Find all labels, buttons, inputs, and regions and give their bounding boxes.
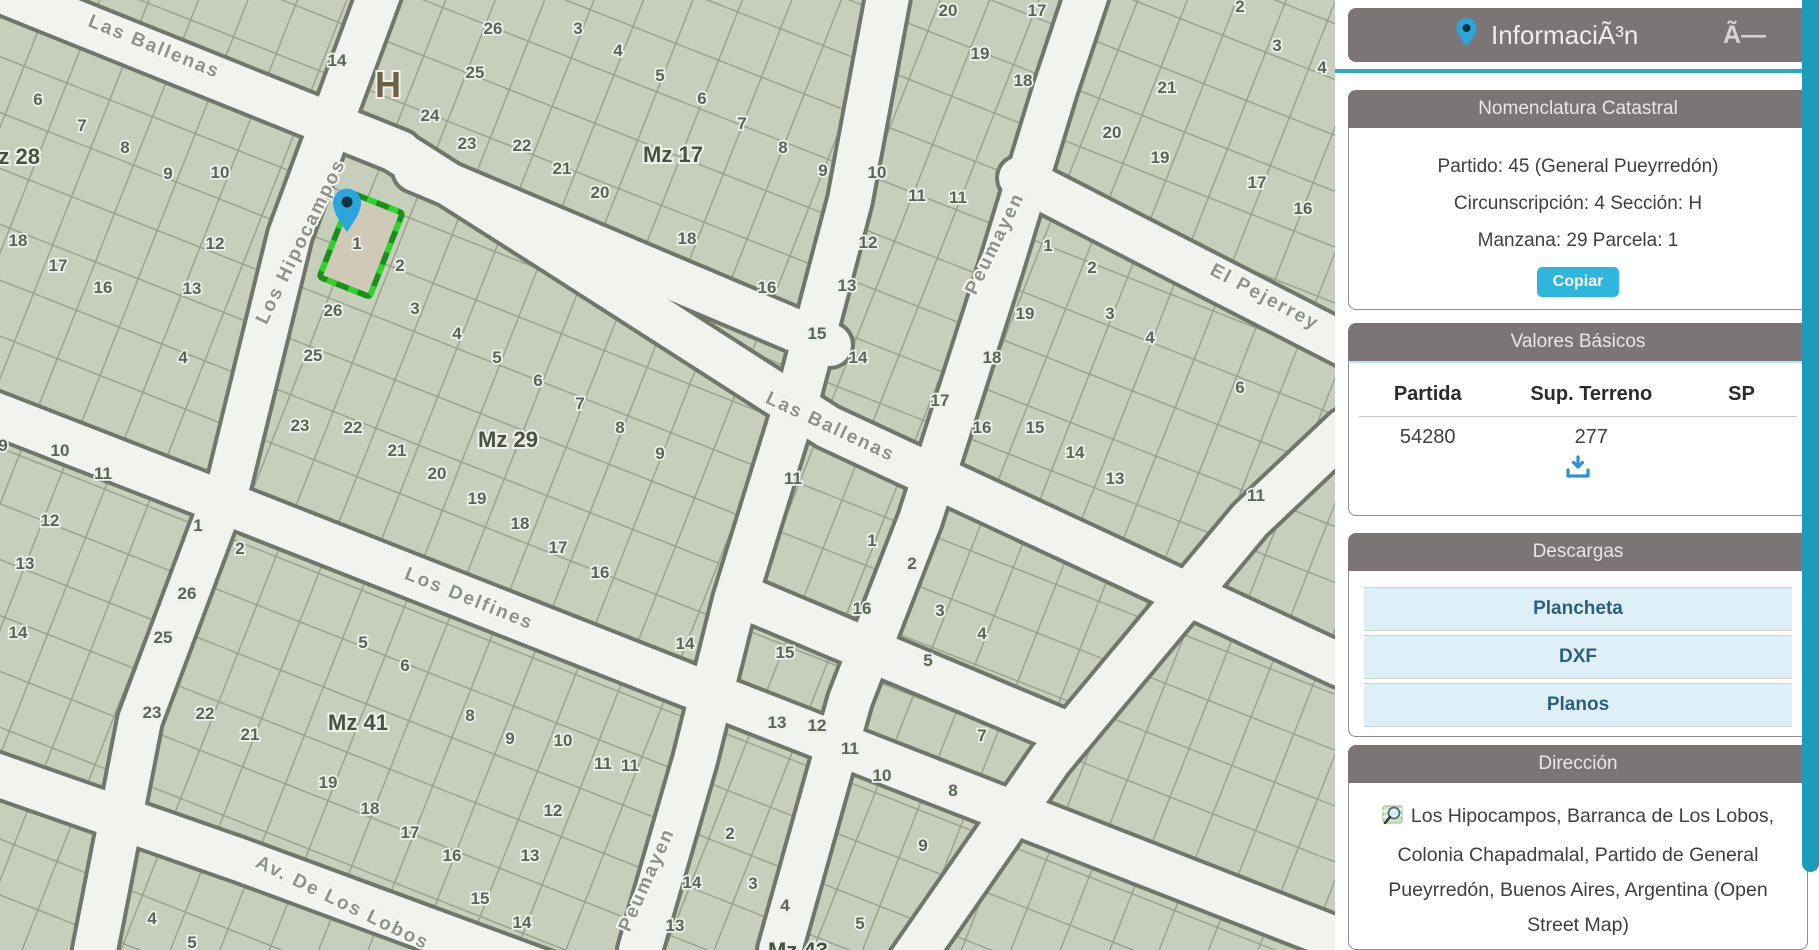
parcel-number-label: 16 — [973, 418, 992, 437]
parcel-number-label: 1 — [1043, 236, 1052, 255]
parcel-number-label: 6 — [400, 656, 409, 675]
parcel-number-label: 19 — [468, 489, 487, 508]
parcel-number-label: 14 — [683, 873, 702, 892]
download-icon[interactable] — [1349, 455, 1807, 485]
parcel-number-label: 20 — [939, 1, 958, 20]
parcel-number-label: 4 — [1317, 58, 1327, 77]
parcel-number-label: 17 — [401, 823, 420, 842]
parcel-number-label: 5 — [923, 651, 932, 670]
parcel-number-label: 18 — [983, 348, 1002, 367]
parcel-number-label: 8 — [465, 706, 474, 725]
parcel-number-label: 13 — [838, 276, 857, 295]
parcel-number-label: 5 — [855, 914, 864, 933]
parcel-number-label: 9 — [655, 444, 664, 463]
parcel-number-label: 13 — [768, 713, 787, 732]
parcel-number-label: 22 — [513, 136, 532, 155]
seccion-letter-label: H — [375, 64, 401, 105]
parcel-number-label: 13 — [183, 279, 202, 298]
parcel-number-label: 10 — [51, 441, 70, 460]
parcel-number-label: 12 — [206, 234, 225, 253]
selected-parcel-number: 1 — [352, 234, 361, 253]
parcel-number-label: 8 — [778, 138, 787, 157]
map-magnifier-icon — [1382, 803, 1405, 838]
parcel-number-label: 4 — [147, 909, 157, 928]
parcel-number-label: 6 — [1235, 378, 1244, 397]
parcel-number-label: 6 — [533, 371, 542, 390]
download-planos[interactable]: Planos — [1364, 683, 1792, 727]
col-sp: SP — [1684, 383, 1799, 406]
section-nomenclatura: Nomenclatura Catastral Partido: 45 (Gene… — [1348, 90, 1808, 310]
parcel-number-label: 4 — [780, 896, 790, 915]
parcel-number-label: 18 — [1014, 71, 1033, 90]
parcel-number-label: 3 — [1272, 36, 1281, 55]
parcel-number-label: 18 — [678, 229, 697, 248]
parcel-number-label: 18 — [511, 514, 530, 533]
parcel-number-label: 22 — [344, 418, 363, 437]
parcel-number-label: 18 — [361, 799, 380, 818]
parcel-number-label: 11 — [94, 464, 112, 483]
parcel-number-label: 17 — [1028, 1, 1047, 20]
panel-header: InformaciÃ³n Ã— — [1348, 8, 1808, 62]
parcel-number-label: 8 — [615, 418, 624, 437]
section-title-valores: Valores Básicos — [1348, 323, 1808, 361]
parcel-number-label: 13 — [1106, 469, 1125, 488]
manzana-parcela-line: Manzana: 29 Parcela: 1 — [1349, 222, 1807, 259]
parcel-number-label: 26 — [484, 19, 503, 38]
parcel-number-label: 5 — [492, 348, 501, 367]
parcel-number-label: 7 — [77, 116, 86, 135]
parcel-number-label: 23 — [291, 416, 310, 435]
parcel-number-label: 16 — [758, 278, 777, 297]
sup-terreno-value: 277 — [1498, 426, 1684, 449]
section-descargas: Descargas Plancheta DXF Planos — [1348, 533, 1808, 737]
sp-value — [1684, 426, 1799, 449]
panel-title: InformaciÃ³n — [1491, 20, 1638, 51]
parcel-number-label: 5 — [358, 633, 367, 652]
parcel-number-label: 25 — [466, 63, 485, 82]
section-title-nomenclatura: Nomenclatura Catastral — [1348, 90, 1808, 128]
download-plancheta[interactable]: Plancheta — [1364, 587, 1792, 631]
parcel-number-label: 21 — [241, 725, 260, 744]
parcel-number-label: 22 — [196, 704, 215, 723]
parcel-number-label: 15 — [776, 643, 795, 662]
download-dxf[interactable]: DXF — [1364, 635, 1792, 679]
parcel-number-label: 11 — [949, 188, 967, 207]
parcel-number-label: 2 — [907, 554, 916, 573]
copiar-button[interactable]: Copiar — [1537, 267, 1620, 297]
parcel-number-label: 11 — [784, 469, 802, 488]
parcel-number-label: 11 — [621, 756, 639, 775]
parcel-number-label: 4 — [977, 624, 987, 643]
parcel-number-label: 2 — [235, 539, 244, 558]
parcel-number-label: 24 — [421, 106, 440, 125]
parcel-number-label: 16 — [443, 846, 462, 865]
parcel-number-label: 3 — [748, 874, 757, 893]
parcel-number-label: 19 — [319, 773, 338, 792]
parcel-number-label: 17 — [1248, 173, 1267, 192]
col-partida: Partida — [1357, 383, 1498, 406]
parcel-number-label: 13 — [16, 554, 35, 573]
parcel-number-label: 25 — [304, 346, 323, 365]
parcel-number-label: 12 — [859, 233, 878, 252]
parcel-number-label: 25 — [154, 628, 173, 647]
parcel-number-label: 16 — [94, 278, 113, 297]
panel-scrollbar[interactable] — [1802, 0, 1819, 872]
parcel-number-label: 10 — [554, 731, 573, 750]
parcel-number-label: 7 — [977, 726, 986, 745]
parcel-number-label: 13 — [666, 916, 685, 935]
parcel-number-label: 17 — [49, 256, 68, 275]
parcel-number-label: 3 — [573, 19, 582, 38]
table-divider — [1359, 416, 1797, 417]
parcel-number-label: 9 — [505, 729, 514, 748]
parcel-number-label: 14 — [513, 913, 532, 932]
close-icon[interactable]: Ã— — [1723, 23, 1766, 48]
parcel-number-label: 14 — [676, 634, 695, 653]
cadastral-map[interactable]: 1467891012181716134910111213142634567891… — [0, 0, 1335, 950]
parcel-number-label: 8 — [948, 781, 957, 800]
parcel-number-label: 17 — [549, 538, 568, 557]
section-direccion: Dirección Los Hipocampos, Barranca de Lo… — [1348, 745, 1808, 950]
parcel-number-label: 15 — [1026, 418, 1045, 437]
parcel-number-label: 19 — [1151, 148, 1170, 167]
parcel-number-label: 2 — [725, 824, 734, 843]
parcel-number-label: 14 — [849, 348, 868, 367]
parcel-number-label: 2 — [395, 256, 404, 275]
parcel-number-label: 12 — [808, 716, 827, 735]
parcel-number-label: 5 — [187, 933, 196, 950]
parcel-number-label: 21 — [553, 159, 572, 178]
manzana-label: Mz 43 — [768, 938, 828, 950]
parcel-number-label: 9 — [918, 836, 927, 855]
section-valores: Valores Básicos Partida Sup. Terreno SP … — [1348, 323, 1808, 516]
info-panel: InformaciÃ³n Ã— Nomenclatura Catastral P… — [1335, 0, 1819, 950]
manzana-label: Mz 17 — [643, 142, 703, 167]
parcel-number-label: 3 — [410, 299, 419, 318]
parcel-number-label: 20 — [1103, 123, 1122, 142]
parcel-number-label: 1 — [867, 531, 876, 550]
parcel-number-label: 4 — [613, 41, 623, 60]
parcel-number-label: 20 — [428, 464, 447, 483]
parcel-number-label: 19 — [971, 44, 990, 63]
parcel-number-label: 13 — [521, 846, 540, 865]
parcel-number-label: 9 — [818, 161, 827, 180]
parcel-number-label: 12 — [544, 801, 563, 820]
parcel-number-label: 23 — [143, 703, 162, 722]
parcel-number-label: 7 — [737, 114, 746, 133]
parcel-number-label: 5 — [655, 66, 664, 85]
parcel-number-label: 14 — [328, 51, 347, 70]
parcel-number-label: 16 — [853, 599, 872, 618]
partida-value: 54280 — [1357, 426, 1498, 449]
parcel-number-label: 21 — [1158, 78, 1177, 97]
parcel-number-label: 15 — [471, 889, 490, 908]
parcel-number-label: 11 — [841, 739, 859, 758]
parcel-number-label: 14 — [9, 623, 28, 642]
manzana-label: Mz 29 — [478, 427, 538, 452]
parcel-number-label: 26 — [324, 301, 343, 320]
parcel-number-label: 3 — [1105, 304, 1114, 323]
parcel-number-label: 1 — [193, 516, 202, 535]
parcel-number-label: 17 — [931, 391, 950, 410]
circunscripcion-line: Circunscripción: 4 Sección: H — [1349, 185, 1807, 222]
parcel-number-label: 7 — [575, 394, 584, 413]
parcel-number-label: 3 — [935, 601, 944, 620]
parcel-number-label: 4 — [452, 324, 462, 343]
parcel-number-label: 10 — [211, 163, 230, 182]
parcel-number-label: 11 — [908, 186, 926, 205]
address-text: Los Hipocampos, Barranca de Los Lobos, C… — [1388, 805, 1774, 936]
parcel-number-label: 10 — [873, 766, 892, 785]
parcel-number-label: 11 — [594, 754, 612, 773]
parcel-number-label: 19 — [1016, 304, 1035, 323]
parcel-number-label: 26 — [178, 584, 197, 603]
parcel-number-label: 14 — [1066, 443, 1085, 462]
manzana-label: Mz 41 — [328, 710, 388, 735]
parcel-number-label: 4 — [1145, 328, 1155, 347]
parcel-number-label: 23 — [458, 134, 477, 153]
parcel-number-label: 21 — [388, 441, 407, 460]
parcel-number-label: 4 — [178, 348, 188, 367]
parcel-number-label: 10 — [868, 163, 887, 182]
parcel-number-label: 16 — [1294, 199, 1313, 218]
parcel-number-label: 2 — [1235, 0, 1244, 16]
parcel-number-label: 18 — [9, 231, 28, 250]
parcel-number-label: 12 — [41, 511, 60, 530]
parcel-number-label: 6 — [33, 90, 42, 109]
parcel-number-label: 11 — [1247, 486, 1265, 505]
parcel-number-label: 16 — [591, 563, 610, 582]
table-row: 54280 277 — [1349, 426, 1807, 449]
section-title-direccion: Dirección — [1348, 745, 1808, 783]
parcel-number-label: 9 — [163, 164, 172, 183]
partido-line: Partido: 45 (General Pueyrredón) — [1349, 148, 1807, 185]
col-sup-terreno: Sup. Terreno — [1498, 383, 1684, 406]
parcel-number-label: 15 — [808, 324, 827, 343]
parcel-number-label: 9 — [0, 436, 8, 455]
cadastral-viewer: 1467891012181716134910111213142634567891… — [0, 0, 1819, 950]
parcel-number-label: 8 — [120, 138, 129, 157]
parcel-number-label: 2 — [1087, 258, 1096, 277]
panel-accent-line — [1335, 69, 1819, 73]
parcel-number-label: 20 — [591, 183, 610, 202]
manzana-label: Mz 28 — [0, 144, 40, 169]
section-title-descargas: Descargas — [1348, 533, 1808, 571]
parcel-number-label: 6 — [697, 89, 706, 108]
marker-pin-icon — [1456, 18, 1477, 53]
